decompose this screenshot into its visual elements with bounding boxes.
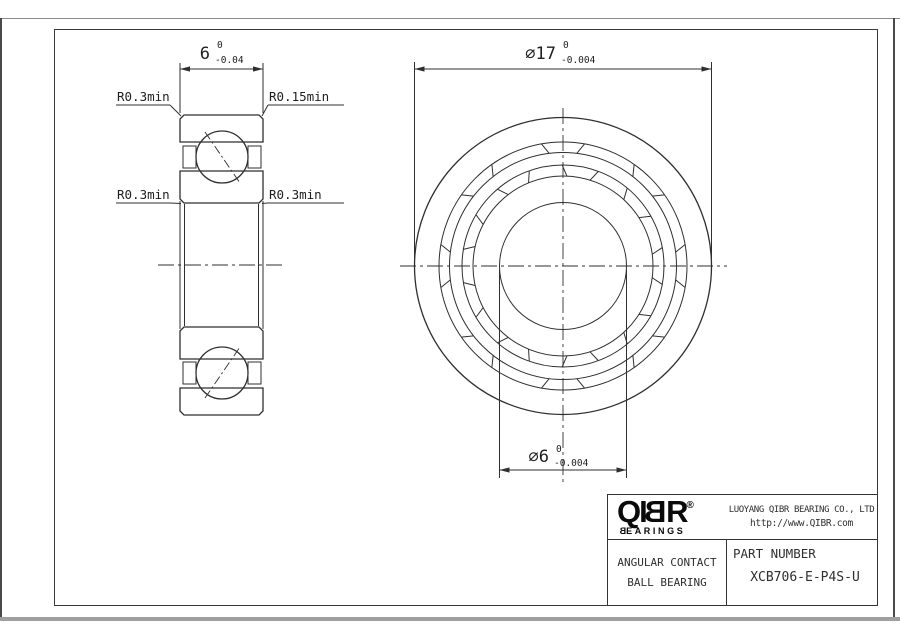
part-number-label: PART NUMBER — [733, 546, 877, 561]
contact-angle-line-lower — [205, 347, 240, 398]
title-block: QIBR® BEARINGS LUOYANG QIBR BEARING CO.,… — [607, 494, 878, 606]
logo-letter-b-mirrored: B — [646, 498, 666, 526]
title-block-detail-row: ANGULAR CONTACT BALL BEARING PART NUMBER… — [608, 540, 877, 605]
cage-lower-left — [183, 362, 196, 384]
fillet-label-top-right: R0.15min — [269, 89, 329, 104]
outer-ring-lower — [180, 388, 263, 415]
upper-section — [180, 115, 263, 203]
lower-section — [180, 327, 263, 415]
width-dim-lower-tol: -0.04 — [215, 55, 244, 66]
width-dim-upper-tol: 0 — [217, 40, 223, 51]
brand-logo: QIBR® BEARINGS — [608, 495, 726, 539]
bore-dia-value: ∅6 — [529, 447, 549, 467]
outer-dia-upper-tol: 0 — [563, 40, 569, 51]
company-info: LUOYANG QIBR BEARING CO., LTD http://www… — [726, 495, 877, 539]
fillet-label-mid-right: R0.3min — [269, 187, 322, 202]
bearing-type-line2: BALL BEARING — [627, 576, 706, 589]
company-website: http://www.QIBR.com — [750, 518, 853, 529]
fillet-label-top-left: R0.3min — [117, 89, 170, 104]
brand-logo-wordmark: QIBR® — [617, 498, 726, 526]
width-dim-value: 6 — [200, 44, 210, 64]
cage-upper-left — [183, 146, 196, 168]
width-dimension: 6 0 -0.04 — [180, 40, 263, 113]
outer-dia-lower-tol: -0.004 — [561, 55, 596, 66]
inner-ring-upper — [180, 171, 263, 203]
part-number-cell: PART NUMBER XCB706-E-P4S-U — [727, 540, 877, 605]
drawing-sheet: 6 0 -0.04 R0.3min R0.15min R0.3min R0.3m… — [0, 0, 900, 636]
bearing-type-line1: ANGULAR CONTACT — [617, 556, 716, 569]
logo-sub-first-letter: B — [617, 526, 626, 536]
outer-ring-upper — [180, 115, 263, 142]
fillet-label-mid-left: R0.3min — [117, 187, 170, 202]
cage-lower-right — [248, 362, 261, 384]
bore-dia-upper-tol: 0 — [556, 444, 562, 455]
part-number-value: XCB706-E-P4S-U — [733, 570, 877, 585]
company-name: LUOYANG QIBR BEARING CO., LTD — [729, 505, 875, 515]
title-block-header-row: QIBR® BEARINGS LUOYANG QIBR BEARING CO.,… — [608, 495, 877, 540]
bore-dia-lower-tol: -0.004 — [554, 458, 589, 469]
registered-trademark-icon: ® — [687, 500, 694, 511]
logo-letter-i: I — [639, 494, 646, 529]
logo-letter-q: Q — [617, 494, 639, 529]
logo-letter-r: R — [666, 494, 686, 529]
bearing-type-cell: ANGULAR CONTACT BALL BEARING — [608, 540, 727, 605]
front-view: ∅17 0 -0.004 ∅6 0 -0.004 — [400, 40, 727, 486]
fillet-callouts: R0.3min R0.15min R0.3min R0.3min — [116, 89, 344, 204]
contact-angle-line-upper — [205, 132, 240, 183]
cage-upper-right — [248, 146, 261, 168]
outer-dia-value: ∅17 — [525, 44, 556, 64]
side-section-view: 6 0 -0.04 R0.3min R0.15min R0.3min R0.3m… — [116, 40, 344, 415]
inner-ring-lower — [180, 327, 263, 359]
brand-logo-subtitle: BEARINGS — [617, 526, 726, 536]
